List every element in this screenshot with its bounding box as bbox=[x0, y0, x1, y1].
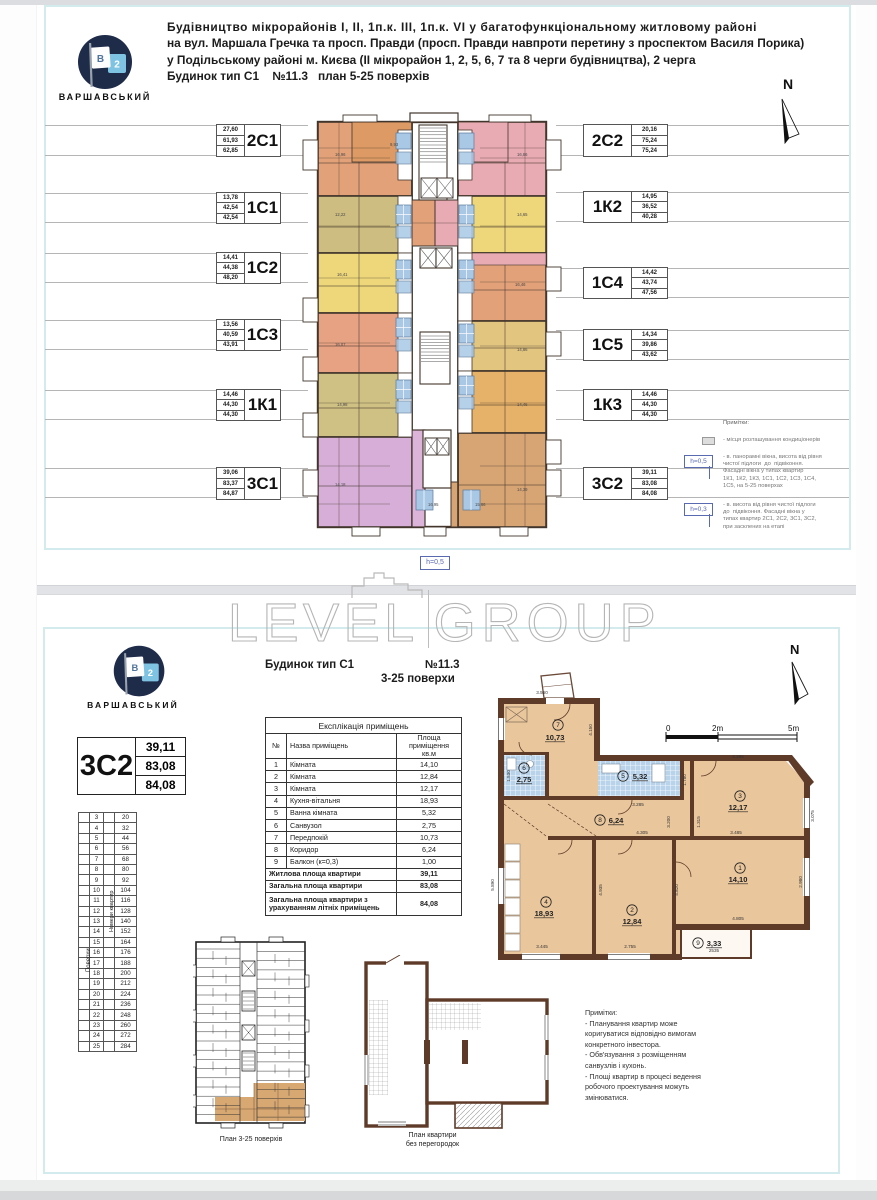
svg-text:14,18: 14,18 bbox=[335, 482, 346, 487]
svg-text:4.305: 4.305 bbox=[636, 830, 648, 835]
svg-text:2.980: 2.980 bbox=[798, 876, 803, 888]
svg-text:2: 2 bbox=[148, 668, 153, 678]
svg-text:1: 1 bbox=[738, 865, 742, 872]
svg-text:16,86: 16,86 bbox=[517, 152, 528, 157]
svg-text:4: 4 bbox=[544, 899, 548, 906]
svg-text:1.530: 1.530 bbox=[506, 770, 511, 782]
svg-text:7: 7 bbox=[556, 722, 560, 729]
svg-text:2.755: 2.755 bbox=[624, 944, 636, 949]
svg-text:6: 6 bbox=[522, 765, 526, 772]
svg-text:5,32: 5,32 bbox=[633, 772, 648, 781]
svg-text:4.150: 4.150 bbox=[588, 724, 593, 736]
svg-text:12,17: 12,17 bbox=[729, 803, 748, 812]
svg-text:В: В bbox=[97, 54, 104, 65]
svg-text:2: 2 bbox=[630, 907, 634, 914]
svg-text:14,10: 14,10 bbox=[729, 875, 748, 884]
svg-text:14,86: 14,86 bbox=[517, 347, 528, 352]
svg-text:6,24: 6,24 bbox=[609, 816, 624, 825]
svg-text:15,66: 15,66 bbox=[475, 502, 486, 507]
svg-text:14,46: 14,46 bbox=[517, 402, 528, 407]
svg-text:3: 3 bbox=[738, 793, 742, 800]
svg-text:14,65: 14,65 bbox=[517, 212, 528, 217]
svg-text:2535: 2535 bbox=[709, 948, 720, 953]
svg-text:4.295: 4.295 bbox=[732, 754, 744, 759]
svg-text:2: 2 bbox=[114, 60, 120, 71]
svg-text:9: 9 bbox=[696, 940, 700, 947]
svg-text:5.890: 5.890 bbox=[490, 879, 495, 891]
svg-text:3.485: 3.485 bbox=[730, 830, 742, 835]
svg-text:16,96: 16,96 bbox=[335, 152, 346, 157]
svg-text:3.560: 3.560 bbox=[536, 690, 548, 695]
svg-text:9,93: 9,93 bbox=[390, 142, 399, 147]
svg-text:3.285: 3.285 bbox=[632, 802, 644, 807]
svg-text:10,73: 10,73 bbox=[546, 733, 565, 742]
svg-text:N: N bbox=[783, 76, 793, 92]
svg-text:2,75: 2,75 bbox=[517, 775, 532, 784]
svg-text:16,07: 16,07 bbox=[335, 342, 346, 347]
svg-text:12,84: 12,84 bbox=[623, 917, 643, 926]
svg-text:8: 8 bbox=[598, 817, 602, 824]
svg-text:16,46: 16,46 bbox=[515, 282, 526, 287]
svg-text:4.935: 4.935 bbox=[598, 884, 603, 896]
svg-text:14,98: 14,98 bbox=[337, 402, 348, 407]
svg-text:3.075: 3.075 bbox=[810, 810, 815, 822]
svg-text:14,39: 14,39 bbox=[517, 487, 528, 492]
svg-text:5: 5 bbox=[621, 773, 625, 780]
svg-text:3,33: 3,33 bbox=[707, 939, 722, 948]
svg-text:3.445: 3.445 bbox=[536, 944, 548, 949]
svg-text:В: В bbox=[131, 663, 138, 673]
svg-text:16,41: 16,41 bbox=[337, 272, 348, 277]
svg-text:4.805: 4.805 bbox=[732, 916, 744, 921]
svg-text:1.315: 1.315 bbox=[696, 816, 701, 828]
svg-text:12,22: 12,22 bbox=[335, 212, 346, 217]
svg-text:3.200: 3.200 bbox=[666, 816, 671, 828]
svg-text:1.780: 1.780 bbox=[682, 774, 687, 786]
svg-text:4.820: 4.820 bbox=[674, 884, 679, 896]
svg-text:18,93: 18,93 bbox=[535, 909, 554, 918]
svg-text:16,95: 16,95 bbox=[428, 502, 439, 507]
